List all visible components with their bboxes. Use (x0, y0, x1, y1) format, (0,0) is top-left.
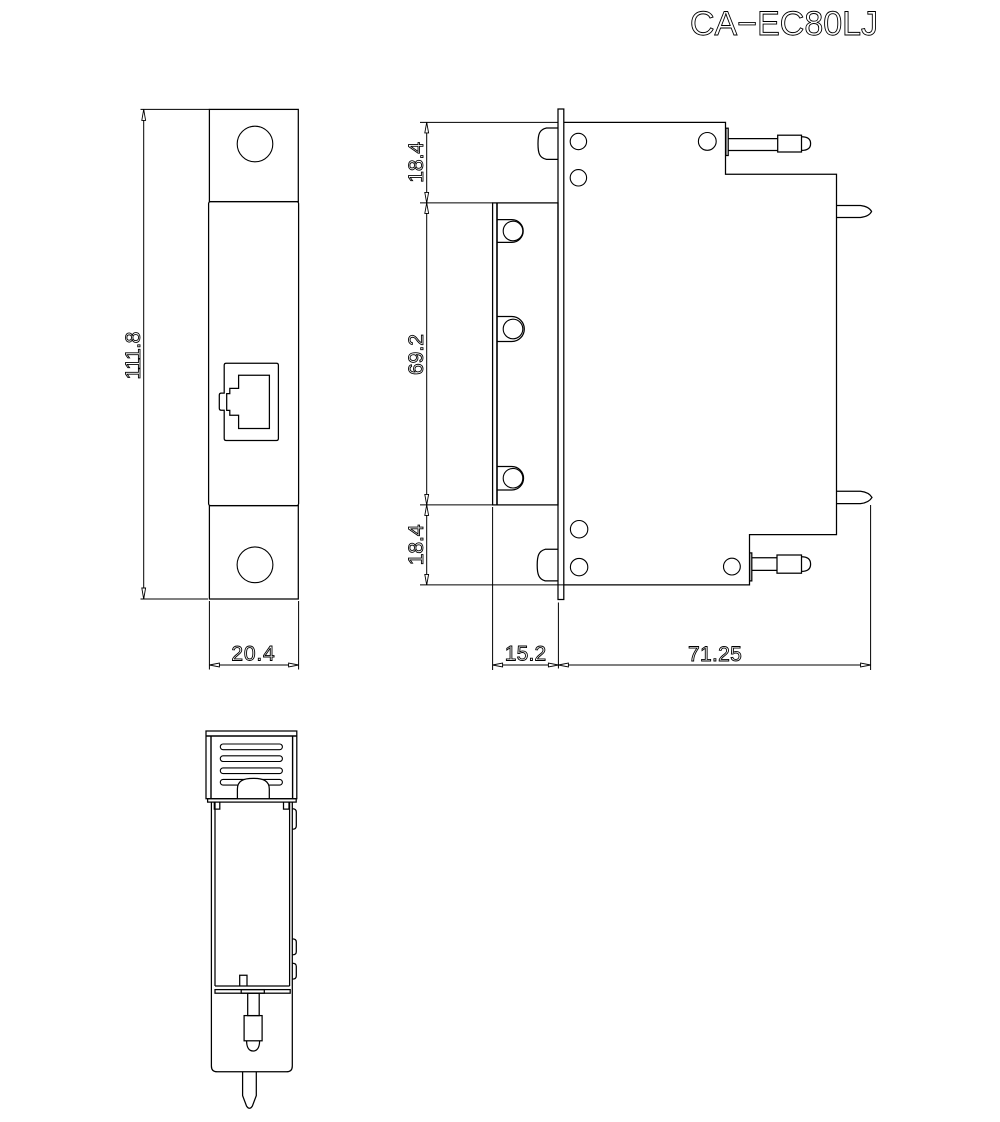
svg-text:111.8: 111.8 (122, 332, 145, 379)
svg-text:69.2: 69.2 (405, 334, 428, 375)
svg-text:CA−EC80LJ: CA−EC80LJ (690, 5, 878, 43)
svg-text:71.25: 71.25 (688, 643, 742, 666)
svg-text:18.4: 18.4 (405, 142, 428, 183)
svg-text:18.4: 18.4 (405, 524, 428, 565)
svg-text:20.4: 20.4 (231, 642, 275, 665)
svg-text:15.2: 15.2 (505, 642, 547, 665)
